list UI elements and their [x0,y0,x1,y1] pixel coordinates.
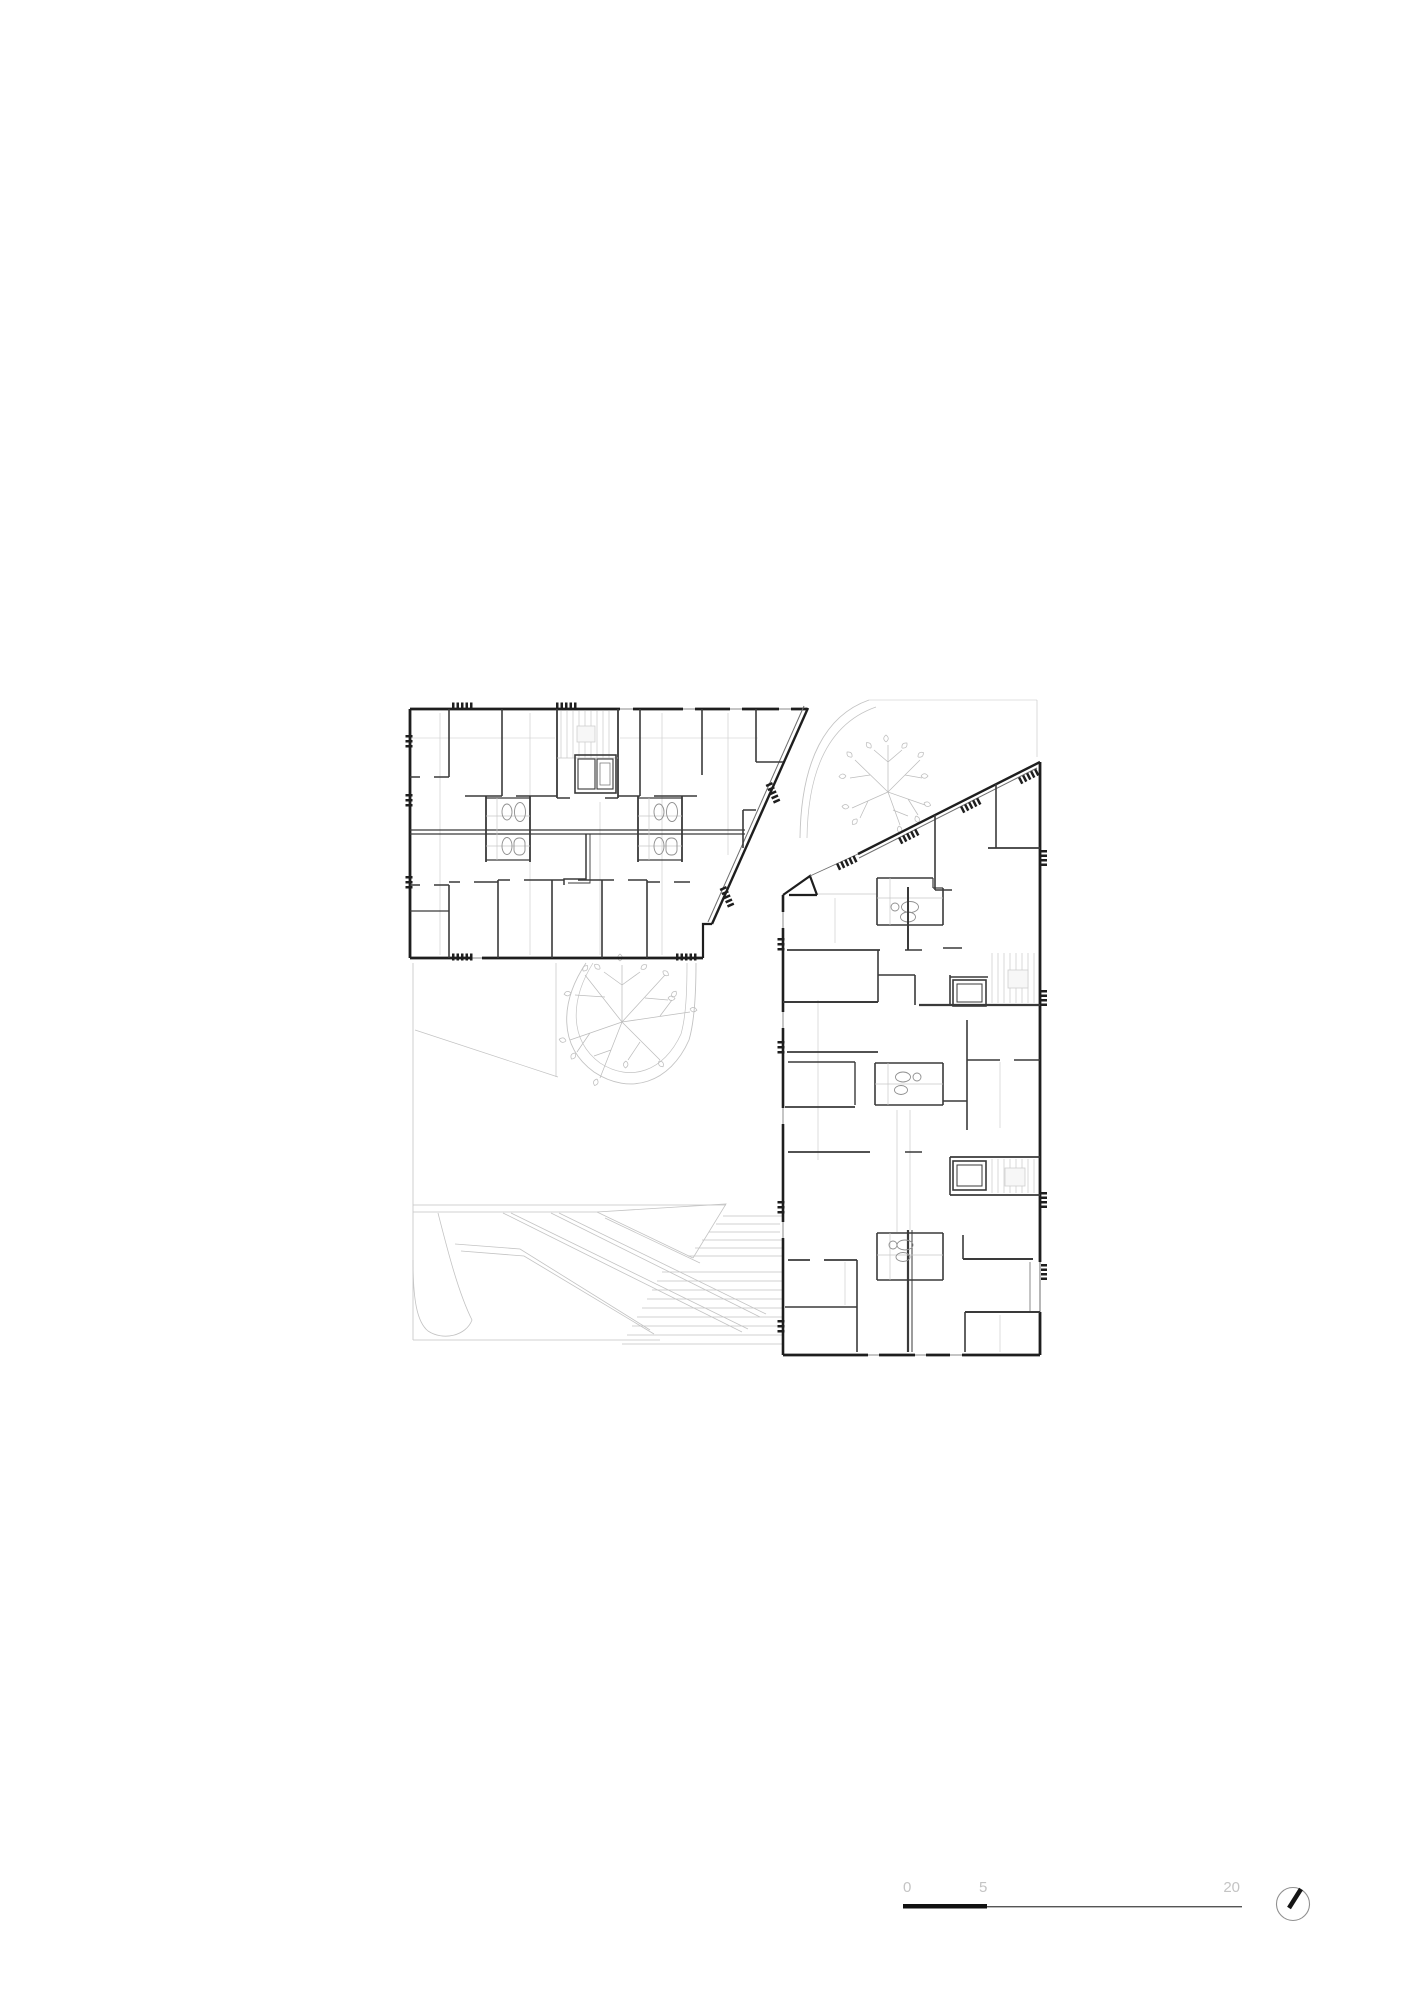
stair-landing [1008,970,1028,988]
stair-landing [1005,1168,1025,1186]
scale-label-5: 5 [979,1879,987,1896]
stair-landing [577,726,595,742]
scale-label-0: 0 [903,1879,911,1896]
north-arrow-icon [1277,1888,1310,1921]
cluster-upper-mid [783,950,1040,1006]
north-arrow-needle [1289,1889,1301,1908]
planting-bed-teardrop [567,963,696,1084]
plan-sheet: 0 5 20 [0,0,1414,2000]
scale-bar-thin-segment [987,1906,1242,1907]
floor-plan-canvas: 0 5 20 [0,0,1414,2000]
building-b-plan [778,762,1048,1359]
landscape-stairs [413,1213,783,1344]
corridor [410,830,745,885]
stair-core-1 [950,953,1034,1006]
scale-bar-thick-segment [903,1904,987,1909]
bathroom-pod-right [638,796,682,862]
scale-bar: 0 5 20 [903,1879,1242,1909]
cluster-top [787,784,1040,950]
cluster-lower-mid [788,1152,1040,1195]
bathroom-pod-left [486,796,530,862]
elevator-shafts [575,755,616,793]
exterior-walls [780,762,1040,1359]
stair-core-2 [950,1157,1040,1195]
building-a-plan [406,703,809,963]
cluster-bottom [785,1230,1040,1352]
partitions-lower [410,880,690,958]
cluster-middle [785,1020,1040,1130]
scale-label-20: 20 [1223,1879,1240,1896]
stair-core [557,709,618,798]
tree-upper [839,735,932,833]
